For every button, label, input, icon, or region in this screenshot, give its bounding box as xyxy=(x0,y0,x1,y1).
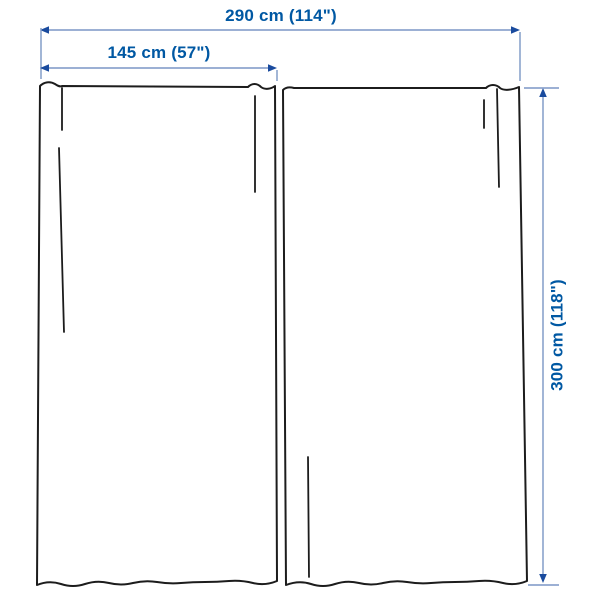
dimension-diagram-svg xyxy=(0,0,600,600)
curtain-panel-left xyxy=(37,82,277,586)
curtain-panel-right-fold-bottom xyxy=(308,457,309,577)
height-label: 300 cm (118") xyxy=(549,279,568,391)
curtain-panel-right-outline xyxy=(283,85,527,586)
arrowhead-right-icon xyxy=(268,64,277,72)
dimension-panel-width xyxy=(40,64,277,81)
panel-width-label: 145 cm (57") xyxy=(107,44,210,63)
arrowhead-right-icon xyxy=(511,26,520,34)
curtain-panel-right xyxy=(283,85,527,586)
curtain-dimension-diagram: 290 cm (114") 145 cm (57") 300 cm (118") xyxy=(0,0,600,600)
curtain-panel-right-fold-top-long xyxy=(497,89,499,187)
total-width-label: 290 cm (114") xyxy=(225,7,337,26)
arrowhead-down-icon xyxy=(539,574,547,583)
curtain-panel-left-fold-long xyxy=(59,148,64,332)
curtain-panel-left-outline xyxy=(37,82,277,586)
arrowhead-up-icon xyxy=(539,88,547,97)
